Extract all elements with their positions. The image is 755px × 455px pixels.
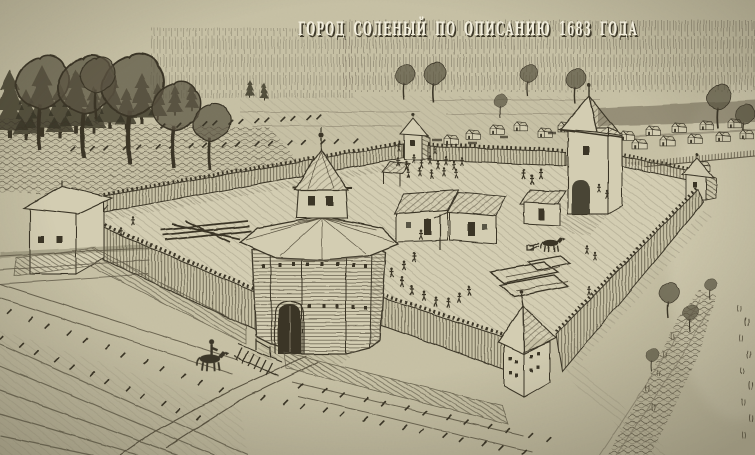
fortress-illustration: ГОРОД СОЛЕНЫЙ ПО ОПИСАНИЮ 1683 ГОДА ГОРО… (0, 0, 755, 455)
vignette (0, 0, 755, 455)
caption: ГОРОД СОЛЕНЫЙ ПО ОПИСАНИЮ 1683 ГОДА ГОРО… (298, 16, 640, 42)
drawing-canvas: ГОРОД СОЛЕНЫЙ ПО ОПИСАНИЮ 1683 ГОДА ГОРО… (0, 0, 755, 455)
artwork-title: ГОРОД СОЛЕНЫЙ ПО ОПИСАНИЮ 1683 ГОДА (298, 16, 638, 40)
